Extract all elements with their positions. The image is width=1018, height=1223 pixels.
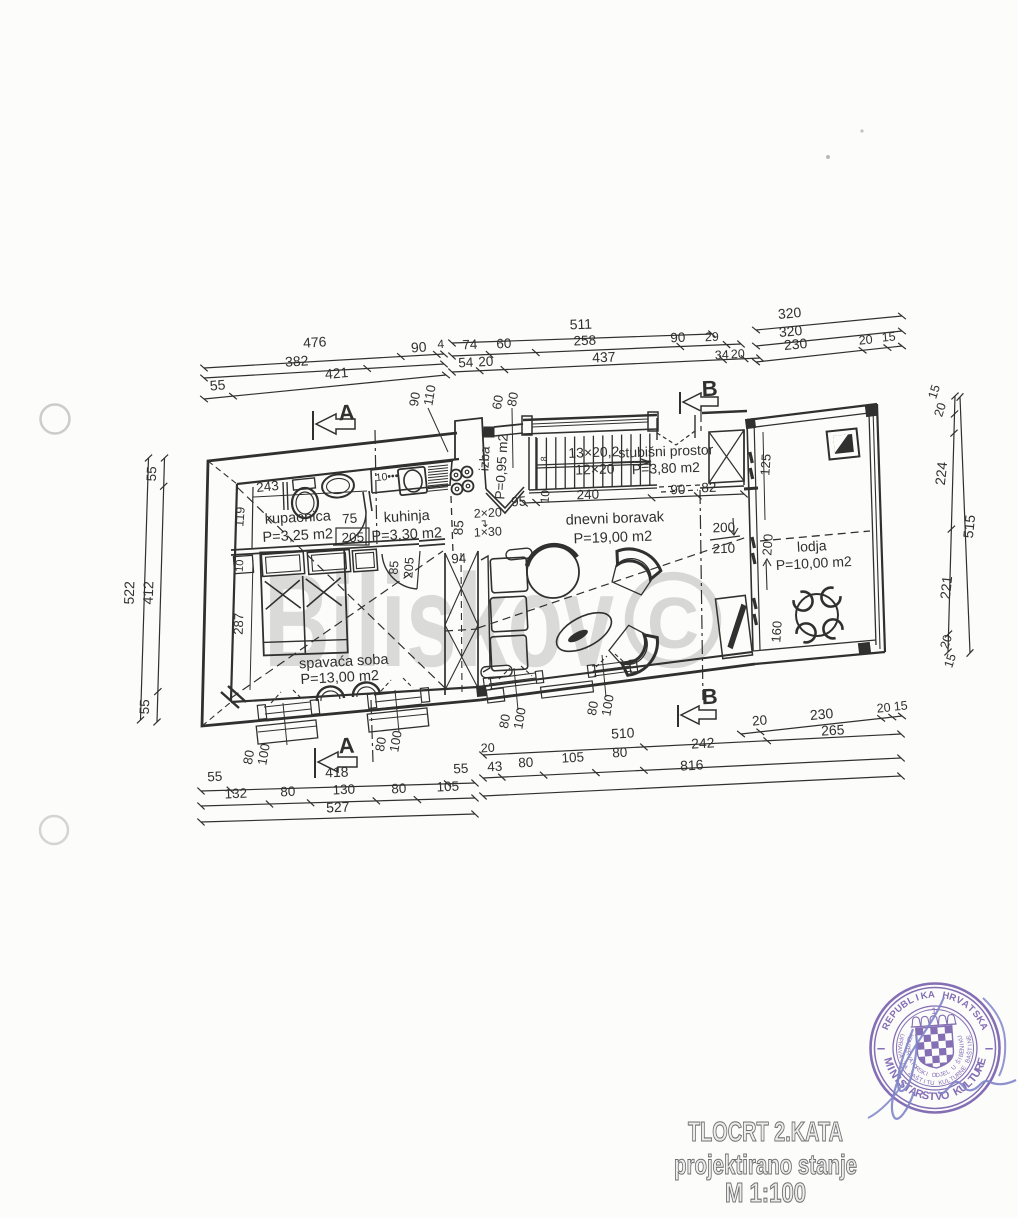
svg-text:510: 510 [611, 724, 635, 741]
svg-text:258: 258 [573, 333, 596, 349]
svg-text:P=3,80 m2: P=3,80 m2 [632, 459, 701, 477]
svg-text:382: 382 [285, 352, 309, 369]
svg-text:75: 75 [342, 511, 358, 527]
svg-text:lodja: lodja [797, 537, 828, 555]
svg-text:242: 242 [691, 734, 715, 751]
svg-text:94: 94 [451, 551, 467, 567]
svg-text:A: A [928, 989, 936, 1000]
svg-text:80: 80 [612, 745, 628, 761]
svg-text:412: 412 [140, 581, 157, 605]
svg-text:T: T [968, 1047, 974, 1051]
svg-text:A: A [338, 400, 355, 426]
svg-text:15: 15 [893, 698, 908, 713]
svg-text:511: 511 [569, 316, 592, 333]
svg-text:54: 54 [458, 355, 474, 371]
svg-text:4: 4 [437, 337, 445, 351]
svg-text:85: 85 [387, 560, 402, 575]
svg-text:U: U [930, 1081, 935, 1087]
svg-text:13×20,2: 13×20,2 [568, 443, 620, 461]
svg-text:A: A [338, 733, 355, 759]
svg-text:P=19,00 m2: P=19,00 m2 [573, 529, 652, 548]
svg-text:10: 10 [538, 489, 553, 504]
svg-text:60: 60 [496, 336, 512, 352]
svg-text:1×30: 1×30 [473, 524, 502, 539]
svg-text:95: 95 [511, 494, 527, 510]
svg-text:80: 80 [280, 784, 296, 800]
svg-text:stubišni prostor: stubišni prostor [618, 441, 714, 460]
svg-text:265: 265 [821, 721, 845, 738]
svg-text:320: 320 [777, 304, 802, 322]
svg-text:90: 90 [670, 482, 686, 498]
svg-text:55: 55 [137, 699, 153, 715]
svg-text:10•••: 10••• [375, 470, 399, 484]
svg-text:20: 20 [480, 741, 495, 756]
svg-text:522: 522 [121, 581, 138, 605]
svg-text:–: – [985, 1040, 993, 1057]
svg-text:55: 55 [207, 769, 223, 785]
svg-text:10: 10 [234, 559, 247, 572]
svg-text:105: 105 [436, 779, 459, 795]
svg-text:20: 20 [731, 347, 746, 362]
svg-text:421: 421 [324, 364, 349, 382]
svg-text:55: 55 [209, 376, 226, 393]
svg-text:224: 224 [932, 461, 950, 486]
svg-text:230: 230 [809, 705, 834, 723]
svg-text:80: 80 [391, 781, 407, 797]
svg-text:476: 476 [303, 333, 327, 350]
svg-text:8: 8 [539, 456, 549, 461]
svg-text:–: – [877, 1040, 885, 1057]
svg-text:240: 240 [576, 487, 599, 503]
svg-text:125: 125 [757, 453, 773, 476]
svg-text:12×20: 12×20 [575, 460, 615, 477]
svg-text:80: 80 [504, 391, 521, 408]
svg-text:20: 20 [876, 700, 891, 715]
svg-text:243: 243 [256, 478, 280, 495]
svg-text:90: 90 [670, 330, 686, 346]
svg-text:M 1:100: M 1:100 [725, 1177, 806, 1208]
svg-text:90: 90 [410, 339, 427, 356]
svg-text:80: 80 [518, 755, 534, 771]
svg-text:437: 437 [592, 348, 616, 365]
svg-text:34: 34 [715, 348, 730, 363]
svg-text:130: 130 [332, 782, 355, 798]
svg-text:20: 20 [751, 712, 767, 728]
svg-text:85: 85 [451, 520, 467, 536]
svg-text:20: 20 [858, 332, 873, 347]
svg-text:74: 74 [462, 337, 478, 353]
svg-text:55: 55 [453, 761, 469, 777]
svg-text:15: 15 [881, 329, 896, 344]
svg-text:29: 29 [705, 330, 720, 345]
svg-text:20: 20 [478, 354, 494, 370]
svg-text:N: N [960, 1046, 966, 1050]
svg-text:160: 160 [768, 620, 784, 643]
svg-text:TLOCRT 2.KATA: TLOCRT 2.KATA [688, 1116, 843, 1147]
svg-text:200: 200 [759, 533, 775, 556]
svg-text:210: 210 [712, 541, 735, 557]
svg-text:230: 230 [783, 335, 808, 353]
svg-text:105: 105 [561, 749, 584, 765]
svg-text:55: 55 [144, 466, 160, 482]
svg-text:B: B [701, 684, 718, 710]
svg-text:527: 527 [326, 798, 350, 815]
svg-text:43: 43 [487, 759, 503, 775]
svg-text:projektirano stanje: projektirano stanje [674, 1149, 857, 1180]
svg-text:816: 816 [680, 756, 704, 773]
svg-text:287: 287 [231, 613, 247, 635]
svg-text:119: 119 [232, 506, 247, 527]
svg-text:515: 515 [960, 514, 978, 539]
svg-text:221: 221 [937, 575, 955, 600]
svg-text:205: 205 [401, 557, 416, 579]
svg-text:132: 132 [224, 786, 247, 802]
svg-text:kuhinja: kuhinja [383, 508, 431, 526]
